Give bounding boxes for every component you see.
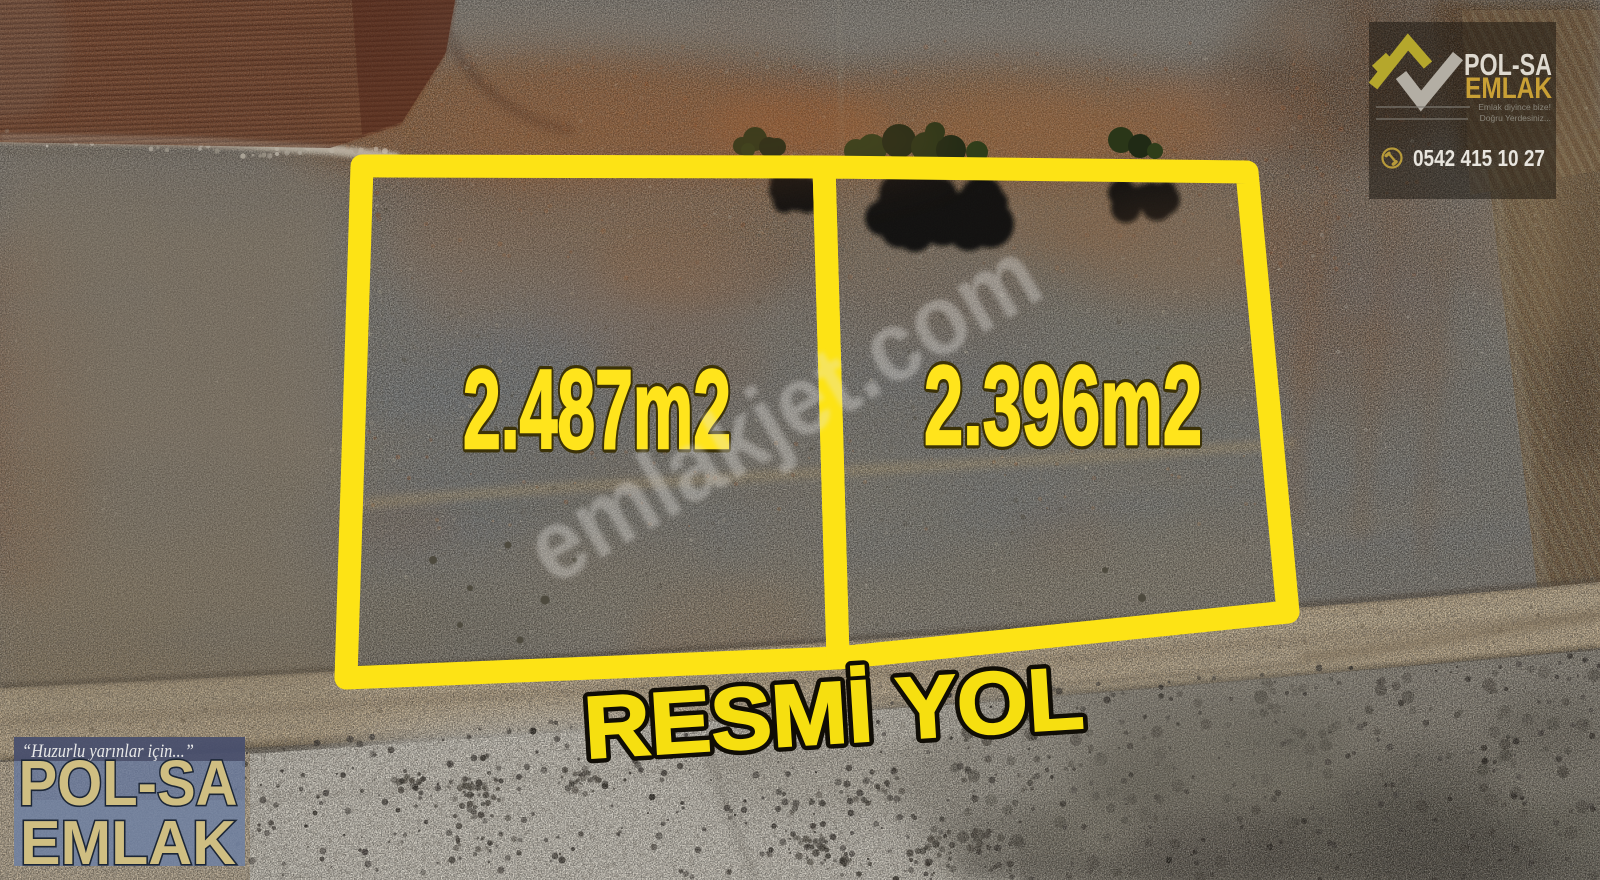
svg-text:EMLAK: EMLAK (20, 809, 236, 878)
svg-text:Emlak diyince bize!: Emlak diyince bize! (1478, 102, 1551, 112)
svg-text:0542 415 10 27: 0542 415 10 27 (1413, 145, 1545, 171)
svg-text:Doğru Yerdesiniz...: Doğru Yerdesiniz... (1480, 113, 1551, 123)
svg-text:EMLAK: EMLAK (1465, 72, 1552, 105)
